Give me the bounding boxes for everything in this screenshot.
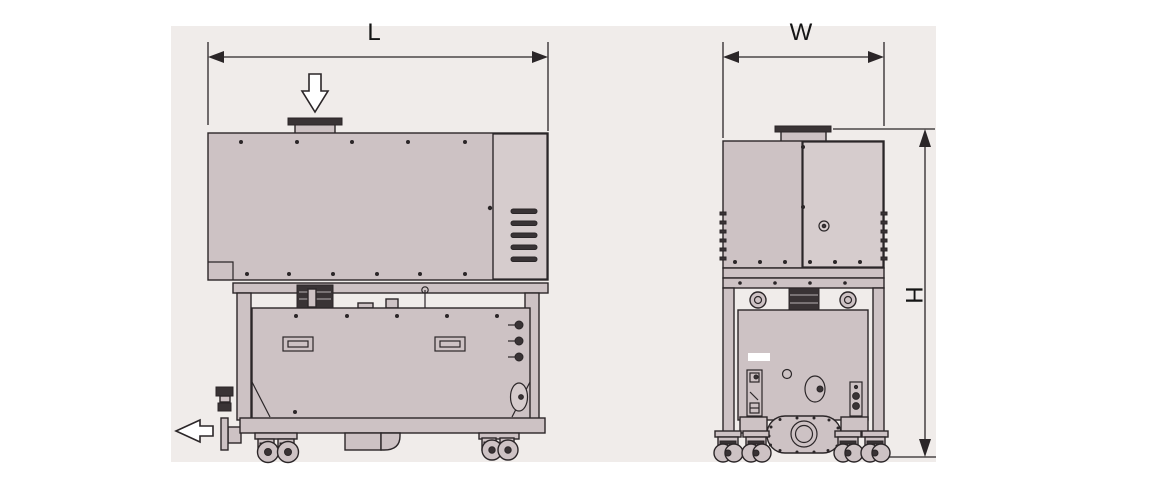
caster-side-left <box>255 433 299 463</box>
upper-housing-side <box>208 133 548 280</box>
oval-cover-plate <box>767 416 842 454</box>
caster-front-4 <box>861 431 890 462</box>
frame-band-front <box>723 268 884 288</box>
dimension-label-H: H <box>900 286 927 303</box>
base-rail-side <box>240 418 545 433</box>
lower-tank-side <box>252 308 530 420</box>
exhaust-duct <box>345 433 400 450</box>
inlet-flange-front <box>775 126 831 142</box>
caster-front-1 <box>714 431 743 462</box>
dimension-drawing: L <box>0 0 1160 480</box>
eye-bolt-right <box>840 292 856 308</box>
lower-tank-front <box>738 310 868 420</box>
eye-bolt-left <box>750 292 766 308</box>
drawing-page: L <box>0 0 1160 480</box>
bellows-front <box>789 288 819 312</box>
dimension-label-W: W <box>790 19 813 46</box>
upper-housing-front <box>720 141 887 268</box>
dimension-label-L: L <box>367 19 380 46</box>
caster-front-2 <box>742 431 771 462</box>
bellows-side <box>297 285 333 309</box>
caster-side-right <box>479 433 519 460</box>
nameplate <box>748 353 770 361</box>
caster-front-3 <box>834 431 863 462</box>
